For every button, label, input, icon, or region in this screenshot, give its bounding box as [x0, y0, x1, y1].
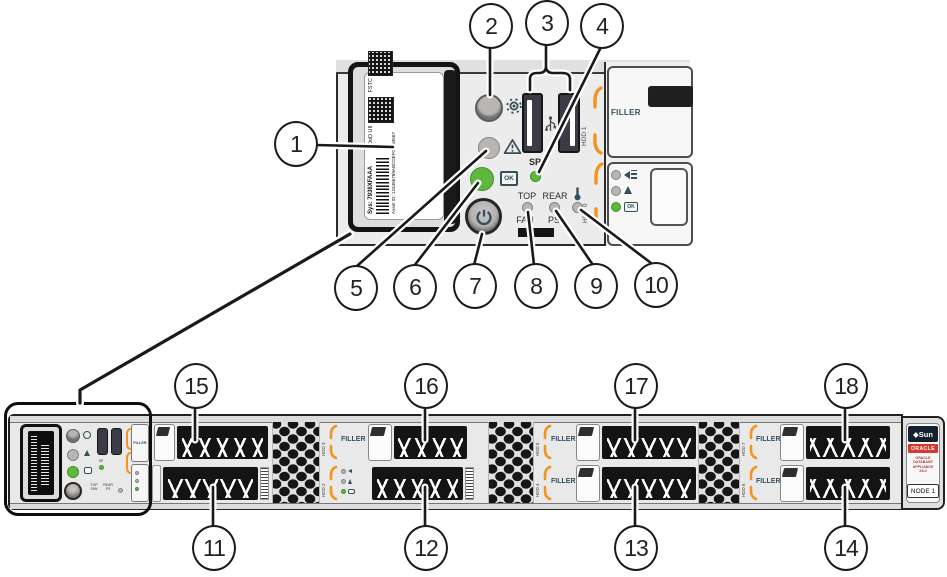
filler-label: FILLER: [551, 436, 576, 443]
callout-7: 7: [453, 263, 497, 309]
rear-ps-led-label-top: REAR: [540, 192, 570, 201]
callout-13: 13: [614, 525, 658, 571]
dod-caption: DoD UII: [368, 125, 374, 145]
ok-led: [470, 167, 494, 191]
callout-10: 10: [634, 262, 678, 308]
callout-15: 15: [174, 363, 218, 409]
drive-latch: [154, 424, 175, 461]
callout-16: 16: [404, 363, 448, 409]
locator-icon: [505, 97, 523, 115]
locator-button: [475, 94, 503, 122]
drive-bay-grille-18: [806, 426, 890, 459]
callout-number: 12: [414, 535, 438, 562]
hdd1-bay-label: HDD 1: [582, 98, 589, 146]
callout-number: 9: [590, 273, 602, 300]
vent-hdd-label-bottom: HDD 4: [536, 469, 541, 497]
top-fan-led-label-top: TOP: [513, 192, 541, 201]
product-name-badge: ORACLE DATABASE APPLIANCE X3-2: [908, 456, 938, 474]
fstc-block: FSTC: [368, 51, 393, 92]
drive-fault-led: [611, 186, 621, 196]
power-button: [465, 198, 502, 235]
top-fan-led-label-bottom: FAN: [511, 216, 539, 225]
drive-bay-grille-11: [163, 467, 258, 500]
filler-label: FILLER: [341, 436, 366, 443]
callout-number: 11: [203, 535, 225, 562]
callout-number: 5: [350, 275, 362, 302]
callout-number: 4: [596, 13, 608, 40]
sp-led-label: SP: [523, 158, 547, 167]
serial-block: Sys: 7938XFAAA Asset ID: 123456789ABCDEF…: [368, 150, 396, 214]
ok-icon: OK: [500, 171, 518, 186]
hdd0-bay-label: HDD 0: [583, 175, 590, 223]
callout-11: 11: [192, 525, 236, 571]
callout-3: 3: [525, 0, 569, 46]
vent-hdd-label-bottom: HDD 2: [322, 469, 327, 497]
callout-8: 8: [514, 263, 558, 309]
drive-bay-grille-12: [372, 467, 463, 500]
drive-fault-led: [341, 479, 346, 484]
overtemp-icon: [572, 186, 583, 201]
callout-1: 1: [274, 121, 318, 167]
callout-12: 12: [404, 525, 448, 571]
drive-micro-label: [465, 467, 474, 500]
server-front-panel-callout-diagram: Sys: 7938XFAAA Asset ID: 123456789ABCDEF…: [0, 0, 947, 577]
callout-number: 16: [414, 373, 438, 400]
tag-housing-strip: [444, 70, 456, 224]
disk-stack-icon: [631, 170, 637, 179]
drive-bay-grille-17: [602, 426, 696, 459]
hex-vent: [488, 422, 534, 503]
callout-number: 1: [290, 131, 302, 158]
callout-number: 6: [409, 274, 421, 301]
drive-latch-button: [650, 168, 688, 226]
service-label: Sys: 7938XFAAA Asset ID: 123456789ABCDEF…: [364, 72, 444, 220]
vent-hdd-label-top: HDD 7: [742, 428, 747, 456]
drive-fault-icon: [624, 186, 632, 194]
drive-latch-edge: [152, 465, 161, 502]
callout-number: 18: [834, 373, 858, 400]
vent-hdd-label-top: HDD 3: [322, 428, 327, 456]
callout-number: 2: [485, 13, 497, 40]
callout-5: 5: [334, 265, 378, 311]
callout-14: 14: [824, 525, 868, 571]
drive-ok-led: [611, 202, 621, 212]
dod-datamatrix: [368, 97, 394, 123]
callout-number: 8: [530, 273, 542, 300]
drive-ok-led: [341, 489, 346, 494]
rear-ps-led: [549, 202, 560, 213]
usb-connector-tab: [570, 100, 575, 146]
vent-hdd-label-top: HDD 5: [536, 428, 541, 456]
rear-ps-led-label-bottom: PS: [543, 216, 565, 225]
fstc-caption: FSTC: [368, 78, 374, 92]
callout-4: 4: [580, 3, 624, 49]
drive-ok-icon: [348, 489, 355, 494]
filler-label: FILLER: [551, 478, 576, 485]
system-serial: Sys: 7938XFAAA: [368, 150, 374, 214]
drive-remove-led: [611, 170, 621, 180]
filler-label: FILLER: [756, 436, 781, 443]
drive-latch: [576, 424, 600, 461]
callout-number: 10: [644, 272, 668, 299]
usb-icon: [544, 115, 557, 133]
drive-micro-label: [260, 467, 269, 500]
ok-icon-text: OK: [504, 175, 514, 182]
drive-remove-icon: [624, 170, 637, 179]
callout-6: 6: [393, 264, 437, 310]
drive-bay-grille-16: [394, 426, 467, 459]
dod-block: DoD UII: [368, 97, 394, 145]
drive-ok-icon-text: OK: [627, 204, 635, 210]
filler-bay-label: FILLER: [611, 108, 641, 117]
callout-18: 18: [824, 363, 868, 409]
drive-latch: [368, 424, 392, 461]
product-line: X3-2: [908, 469, 938, 473]
vent-hdd-label-bottom: HDD 6: [742, 469, 747, 497]
drive-remove-led: [341, 469, 346, 474]
drive-latch: [780, 465, 804, 502]
callout-number: 3: [541, 10, 553, 37]
callout-number: 13: [624, 535, 648, 562]
sun-logo-badge: ◆Sun: [908, 426, 938, 442]
drive-led-cluster: [341, 469, 367, 499]
oracle-logo-badge: ORACLE: [908, 444, 938, 453]
node-label: NODE 1: [907, 484, 939, 498]
hex-vent: [698, 422, 740, 503]
hex-vent: [272, 422, 320, 503]
panel-slot: [518, 228, 554, 237]
asset-id: Asset ID: 123456789ABCDEF01234567: [391, 150, 396, 214]
callout-number: 7: [469, 273, 481, 300]
callout-number: 17: [624, 373, 648, 400]
usb-connector-tab: [527, 100, 532, 146]
service-label-content: Sys: 7938XFAAA Asset ID: 123456789ABCDEF…: [365, 73, 445, 221]
usb-port-0: [522, 93, 543, 153]
usb-port-1: [558, 93, 580, 153]
drive-latch: [780, 424, 804, 461]
drive-latch: [576, 465, 600, 502]
callout-17: 17: [614, 363, 658, 409]
callout-number: 15: [184, 373, 208, 400]
serial-barcode: [376, 156, 389, 214]
top-fan-led: [522, 202, 533, 213]
filler-label: FILLER: [756, 478, 781, 485]
drive-ok-icon: OK: [624, 202, 638, 212]
sp-led: [530, 171, 541, 182]
eject-arrow-icon: [624, 171, 630, 179]
callout-2: 2: [469, 3, 513, 49]
drive-bay-grille-15: [177, 426, 268, 459]
drive-fault-icon: [348, 479, 352, 484]
callout-number: 14: [834, 535, 858, 562]
callout-9: 9: [574, 263, 618, 309]
magnified-region-outline: [4, 402, 152, 516]
drive-bay-grille-14: [806, 467, 890, 500]
warning-icon: [503, 138, 522, 155]
drive-bay-grille-13: [602, 467, 696, 500]
filler-bay-grille: [648, 86, 693, 107]
eject-arrow-icon: [348, 469, 352, 473]
power-icon: [475, 208, 493, 226]
fault-led: [478, 137, 500, 159]
fstc-datamatrix: [368, 51, 393, 76]
